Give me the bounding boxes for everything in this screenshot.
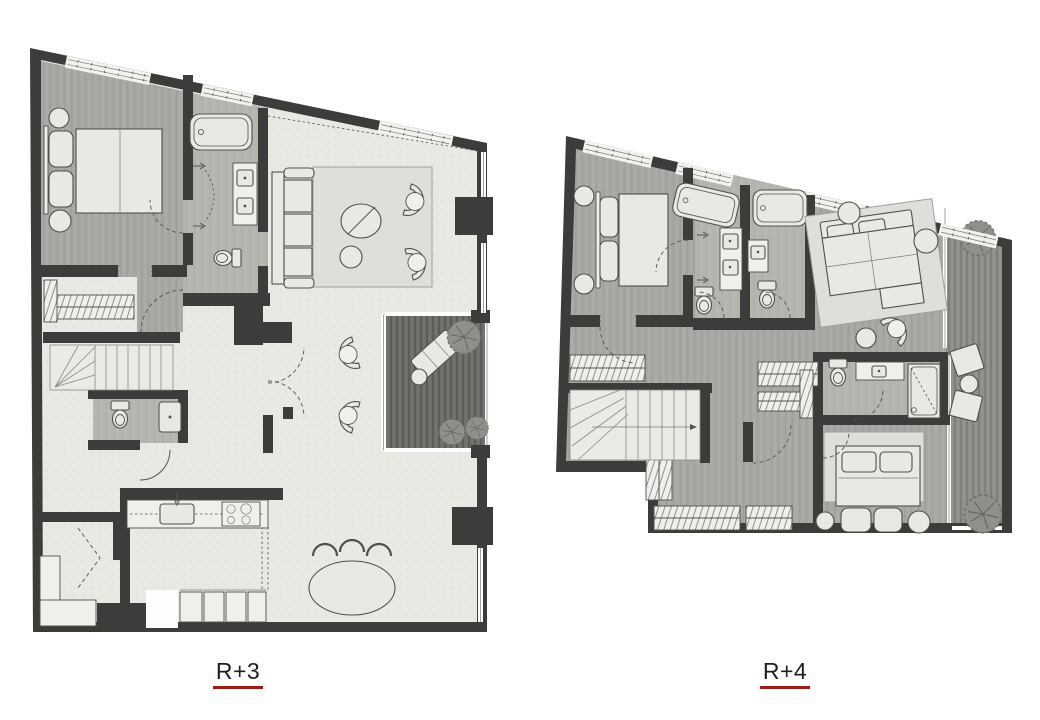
- plan-label-r4: R+4: [725, 658, 845, 689]
- r3-nightstand-2: [49, 210, 71, 232]
- r4-balcony: [943, 208, 1002, 533]
- r4-side-table-2: [914, 229, 938, 253]
- r3-bathtub: [190, 114, 252, 150]
- r3-kitchen-sink: [160, 504, 194, 524]
- r4-toilet-2: [758, 281, 776, 308]
- r3-stairs: [50, 345, 173, 390]
- r4-nightstand-1: [574, 186, 594, 206]
- r4-closet-1: [570, 355, 645, 381]
- r4-stairs: [570, 390, 700, 460]
- r3-double-sink: [233, 163, 257, 225]
- floor-plans-sheet: R+3 R+4: [0, 0, 1040, 720]
- r3-nightstand-1: [49, 108, 69, 128]
- floor-plans-drawing: [0, 0, 1040, 720]
- plan-label-r3-text: R+3: [213, 658, 263, 689]
- r4-nightstand-3: [816, 512, 834, 530]
- r3-cased-opening: [118, 265, 152, 277]
- r3-balcony: [381, 310, 490, 458]
- r4-balcony-table: [960, 375, 978, 393]
- r4-plant-2: [964, 495, 1002, 533]
- r3-balcony-table: [411, 369, 427, 385]
- r4-closet-6: [746, 506, 792, 530]
- r4-toilet-1: [695, 287, 713, 314]
- r4-side-table-1: [838, 202, 860, 224]
- plan-label-r4-text: R+4: [760, 658, 810, 689]
- r4-side-table-3: [856, 328, 876, 348]
- plan-label-r3: R+3: [178, 658, 298, 689]
- r3-wc-toilet: [111, 401, 129, 428]
- floor-plan-r3: [30, 48, 493, 632]
- r3-toilet: [214, 249, 241, 267]
- r3-plant-1: [448, 321, 481, 354]
- floor-plan-r4: [556, 136, 1012, 533]
- r3-entry-door-opening: [146, 590, 178, 628]
- r3-dining-table: [309, 561, 395, 615]
- r3-lower-cabinets: [180, 590, 266, 622]
- r4-bathtub-2: [753, 190, 807, 226]
- r3-plant-2: [439, 419, 465, 445]
- r4-nightstand-4: [908, 511, 930, 533]
- r4-nightstand-2: [574, 274, 594, 294]
- r4-toilet-3: [829, 359, 847, 386]
- r3-plant-3: [466, 417, 489, 440]
- r4-closet-3: [758, 392, 806, 411]
- r4-closet-5: [654, 506, 740, 530]
- r4-double-sink: [720, 228, 742, 290]
- r4-closet-7: [800, 370, 813, 418]
- r3-stove: [222, 502, 260, 526]
- r4-shower: [908, 364, 940, 418]
- r3-dressing-floor: [137, 277, 183, 332]
- r3-sofa: [272, 168, 314, 288]
